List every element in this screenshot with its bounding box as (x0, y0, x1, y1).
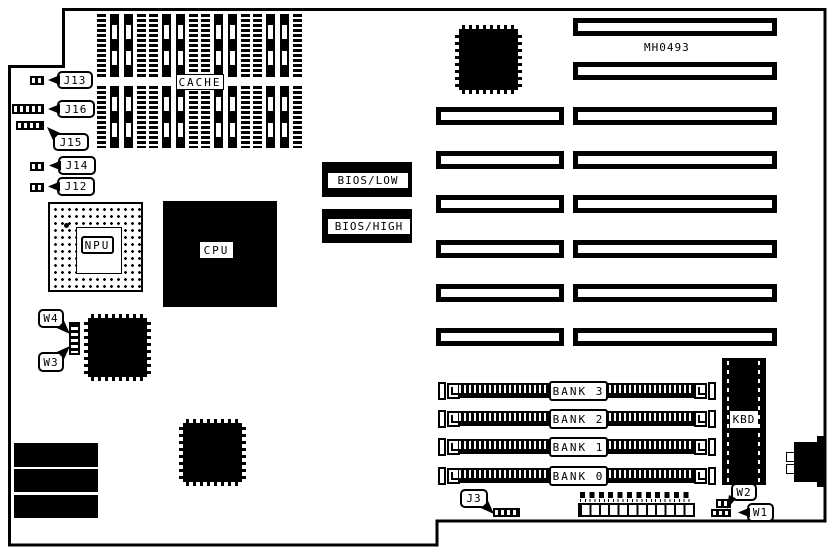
bios-high-label: BIOS/HIGH (328, 219, 410, 234)
isa-slot (573, 240, 777, 258)
simm-socket-bank2: BANK 2 (438, 409, 716, 429)
edge-connector (14, 495, 98, 518)
power-pins-top (580, 492, 693, 498)
cache-chip (97, 86, 146, 148)
w1-callout: W1 (747, 503, 774, 522)
keyboard-din-connector (794, 442, 826, 482)
cache-chip (149, 86, 198, 148)
isa-slot (573, 151, 777, 169)
w3-label: W3 (43, 356, 58, 369)
j13-label: J13 (64, 74, 87, 87)
j16-label: J16 (65, 103, 88, 116)
cache-chip (201, 86, 250, 148)
pin1-dot (64, 223, 69, 228)
edge-connector (14, 469, 98, 492)
jumper-j3 (493, 508, 520, 517)
j13-callout: J13 (57, 71, 93, 89)
motherboard-diagram: CACHE J13 J16 J15 J14 J12 NPU CPU BIOS/L… (0, 0, 832, 553)
power-pins-bottom (578, 503, 695, 517)
w4-callout: W4 (38, 309, 64, 328)
isa-slot (436, 240, 564, 258)
power-pins-mid (580, 499, 693, 502)
bank3-label: BANK 3 (549, 381, 608, 401)
jumper-j15 (16, 121, 44, 130)
w3-callout: W3 (38, 352, 64, 372)
cache-chip (253, 86, 302, 148)
isa-slot (436, 107, 564, 125)
cache-chip (253, 14, 302, 77)
j3-callout: J3 (460, 489, 488, 508)
isa-slot (573, 62, 777, 80)
simm-socket-bank1: BANK 1 (438, 437, 716, 457)
isa-slot (436, 195, 564, 213)
cpu-label: CPU (200, 242, 233, 258)
bank1-label: BANK 1 (549, 437, 608, 457)
kbd-label: KBD (730, 411, 758, 428)
isa-slot (436, 328, 564, 346)
j12-callout: J12 (57, 177, 95, 196)
jumper-j13 (30, 76, 44, 85)
w2-label: W2 (736, 486, 751, 499)
kbd-dash-line (758, 361, 760, 482)
bank2-label: BANK 2 (549, 409, 608, 429)
din-pin (786, 464, 795, 474)
w2-callout: W2 (731, 483, 757, 501)
jumper-j12 (30, 183, 44, 192)
npu-label: NPU (81, 236, 114, 254)
qfp-chip (455, 25, 522, 94)
isa-slot (436, 284, 564, 302)
edge-connector (14, 443, 98, 467)
isa-slot (436, 151, 564, 169)
qfp-chip (179, 419, 246, 486)
j14-callout: J14 (58, 156, 96, 175)
bios-low-label: BIOS/LOW (328, 173, 408, 188)
simm-socket-bank0: BANK 0 (438, 466, 716, 486)
j3-label: J3 (466, 492, 481, 505)
power-connector (578, 492, 695, 517)
isa-slot (573, 18, 777, 36)
simm-socket-bank3: BANK 3 (438, 381, 716, 401)
part-number: MH0493 (644, 41, 690, 54)
j15-callout: J15 (53, 133, 89, 151)
jumper-w1 (711, 509, 731, 517)
w4-label: W4 (43, 312, 58, 325)
j12-label: J12 (65, 180, 88, 193)
kbd-dash-line (727, 361, 729, 482)
isa-slot (573, 284, 777, 302)
j16-callout: J16 (57, 100, 95, 118)
w1-label: W1 (753, 506, 768, 519)
jumper-j16 (12, 104, 44, 114)
j14-label: J14 (66, 159, 89, 172)
cache-label: CACHE (176, 74, 224, 90)
isa-slot (573, 195, 777, 213)
isa-slot (573, 328, 777, 346)
jumper-j14 (30, 162, 44, 171)
cache-chip (149, 14, 198, 77)
qfp-chip (84, 314, 151, 381)
bank0-label: BANK 0 (549, 466, 608, 486)
jumper-w4-w3 (69, 322, 80, 355)
din-pin (786, 452, 795, 462)
j15-label: J15 (60, 136, 83, 149)
isa-slot (573, 107, 777, 125)
cache-chip (97, 14, 146, 77)
cache-chip (201, 14, 250, 77)
